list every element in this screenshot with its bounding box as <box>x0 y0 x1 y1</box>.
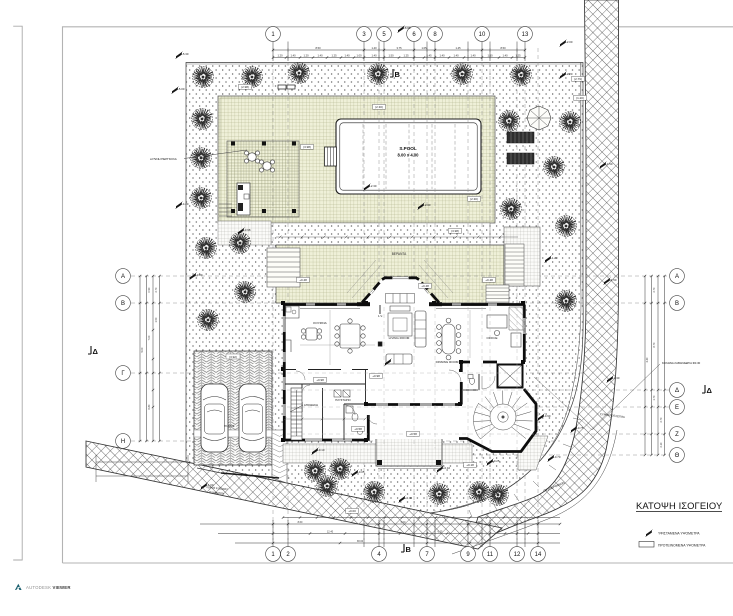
svg-text:ΓΚΑΡΑΖ: ΓΚΑΡΑΖ <box>224 424 235 428</box>
svg-text:8.50: 8.50 <box>500 46 506 50</box>
svg-text:(2.30): (2.30) <box>470 197 478 201</box>
svg-text:ΚΟΛΩΝΑ ΛΑΒΑΝΔΕΡΙΑ Φ0.30: ΚΟΛΩΝΑ ΛΑΒΑΝΔΕΡΙΑ Φ0.30 <box>662 361 701 365</box>
svg-text:1.40: 1.40 <box>453 53 459 57</box>
svg-text:2.10: 2.10 <box>660 442 663 447</box>
svg-text:(3.92): (3.92) <box>229 355 237 359</box>
svg-text:+0.48: +0.48 <box>421 284 429 288</box>
svg-text:(3.98): (3.98) <box>451 229 459 233</box>
svg-text:-2.30: -2.30 <box>370 184 377 188</box>
svg-text:2.20: 2.20 <box>476 521 481 524</box>
svg-text:1.25: 1.25 <box>515 53 521 57</box>
svg-text:A: A <box>121 274 125 280</box>
svg-text:1.40: 1.40 <box>344 53 350 57</box>
svg-text:8.50: 8.50 <box>315 46 321 50</box>
svg-text:7.00: 7.00 <box>148 335 151 340</box>
svg-text:1.45: 1.45 <box>455 46 461 50</box>
svg-text:DINNING ROOM: DINNING ROOM <box>436 360 459 364</box>
svg-text:+0.00: +0.00 <box>405 496 413 500</box>
svg-text:ΠΛΥΣΤΑΡΙΟ: ΠΛΥΣΤΑΡΙΟ <box>335 398 351 402</box>
svg-text:2.70: 2.70 <box>155 287 158 292</box>
svg-text:6.35: 6.35 <box>438 530 443 533</box>
svg-text:8.60: 8.60 <box>298 521 303 524</box>
svg-text:8.00 x 4.00: 8.00 x 4.00 <box>398 153 420 158</box>
svg-text:1.40: 1.40 <box>502 53 508 57</box>
svg-text:+0.48: +0.48 <box>299 278 307 282</box>
svg-text:4.40: 4.40 <box>646 357 649 362</box>
svg-text:+0.58: +0.58 <box>354 427 362 431</box>
svg-text:1.40: 1.40 <box>290 53 296 57</box>
svg-text:1.70: 1.70 <box>653 395 656 400</box>
svg-text:2.70: 2.70 <box>660 417 663 422</box>
svg-text:B: B <box>675 301 679 307</box>
svg-text:+0.10: +0.10 <box>443 466 451 470</box>
svg-text:1.V.: 1.V. <box>378 314 383 318</box>
svg-text:H: H <box>121 439 125 445</box>
svg-text:38.00: 38.00 <box>357 540 364 543</box>
svg-text:1.05: 1.05 <box>421 46 427 50</box>
svg-text:(2.30): (2.30) <box>375 105 383 109</box>
svg-text:(1.20): (1.20) <box>576 96 584 100</box>
svg-text:-5.00: -5.00 <box>178 87 185 91</box>
svg-text:ΒΕΡΑΝΤΑ: ΒΕΡΑΝΤΑ <box>392 252 407 256</box>
svg-text:ΥΦΙΣΤΑΜΕΝΑ ΥΨΟΜΕΤΡΑ: ΥΦΙΣΤΑΜΕΝΑ ΥΨΟΜΕΤΡΑ <box>658 532 700 536</box>
svg-text:1.00: 1.00 <box>356 53 362 57</box>
svg-text:-0.75: -0.75 <box>577 426 584 430</box>
svg-text:-0.90: -0.90 <box>544 414 551 418</box>
svg-text:ΞΥΛΙΝΗ ΠΕΡΓΚΟΛΑ: ΞΥΛΙΝΗ ΠΕΡΓΚΟΛΑ <box>150 157 177 161</box>
svg-text:1.40: 1.40 <box>470 53 476 57</box>
svg-text:OFFICE: OFFICE <box>487 336 498 340</box>
svg-text:1.50: 1.50 <box>388 53 394 57</box>
svg-text:(3.98): (3.98) <box>303 145 311 149</box>
svg-text:-5.30: -5.30 <box>182 52 189 56</box>
svg-text:-1.50: -1.50 <box>610 278 617 282</box>
svg-text:Δ: Δ <box>675 388 679 394</box>
svg-text:B: B <box>406 545 412 554</box>
svg-text:B: B <box>121 301 125 307</box>
svg-text:-0.25: -0.25 <box>493 459 500 463</box>
svg-text:A: A <box>675 274 679 280</box>
svg-text:(2.79): (2.79) <box>574 77 582 81</box>
svg-text:+0.48: +0.48 <box>485 278 493 282</box>
svg-text:VIEWER: VIEWER <box>53 585 72 590</box>
svg-text:-4.20: -4.20 <box>182 202 189 206</box>
svg-text:-1.00: -1.00 <box>207 483 214 487</box>
svg-text:8.70: 8.70 <box>653 342 656 347</box>
svg-text:+0.98: +0.98 <box>316 378 324 382</box>
svg-text:1.20: 1.20 <box>303 53 309 57</box>
svg-text:3.75: 3.75 <box>396 46 402 50</box>
svg-text:1.40: 1.40 <box>371 46 377 50</box>
svg-text:11: 11 <box>487 552 494 558</box>
svg-text:14: 14 <box>535 552 542 558</box>
svg-text:1.20: 1.20 <box>277 53 283 57</box>
svg-text:12: 12 <box>514 552 521 558</box>
svg-text:1.40: 1.40 <box>439 53 445 57</box>
svg-text:2.70: 2.70 <box>653 287 656 292</box>
svg-text:-0.05: -0.05 <box>358 470 365 474</box>
svg-text:+0.18: +0.18 <box>466 463 474 467</box>
svg-text:(2.98): (2.98) <box>241 85 249 89</box>
svg-text:Θ: Θ <box>675 453 680 459</box>
svg-text:S.POOL: S.POOL <box>399 146 417 151</box>
svg-text:5.00: 5.00 <box>401 521 406 524</box>
svg-text:+0.00: +0.00 <box>348 509 356 513</box>
svg-text:-2.20: -2.20 <box>566 72 573 76</box>
svg-text:+0.58: +0.58 <box>409 432 417 436</box>
svg-text:-2.30: -2.30 <box>424 203 431 207</box>
svg-text:-2.00: -2.00 <box>566 40 573 44</box>
svg-text:9.00: 9.00 <box>141 347 144 352</box>
svg-text:0.90: 0.90 <box>148 287 151 292</box>
svg-text:ΠΡΟΤΕΙΝΟΜΕΝΑ ΥΨΟΜΕΤΡΑ: ΠΡΟΤΕΙΝΟΜΕΝΑ ΥΨΟΜΕΤΡΑ <box>658 544 706 548</box>
svg-text:-6.00: -6.00 <box>404 26 411 30</box>
svg-text:Δ: Δ <box>707 386 713 395</box>
svg-text:13: 13 <box>522 32 529 38</box>
svg-text:E: E <box>675 405 679 411</box>
svg-text:1.50: 1.50 <box>155 317 158 322</box>
svg-text:1.25: 1.25 <box>403 53 409 57</box>
svg-text:-1.20: -1.20 <box>551 256 558 260</box>
svg-text:B: B <box>395 70 401 79</box>
svg-text:LIVING ROOM: LIVING ROOM <box>389 336 410 340</box>
svg-text:-0.70: -0.70 <box>554 455 561 459</box>
svg-text:Z: Z <box>675 432 679 438</box>
svg-text:1.25: 1.25 <box>331 53 337 57</box>
svg-text:ΚΑΤΟΨΗ ΙΣΟΓΕΙΟΥ: ΚΑΤΟΨΗ ΙΣΟΓΕΙΟΥ <box>636 500 723 511</box>
svg-text:ΑΠΟΘΗΚΗ: ΑΠΟΘΗΚΗ <box>304 403 318 407</box>
svg-text:1.50: 1.50 <box>487 53 493 57</box>
svg-text:Δ: Δ <box>93 347 99 356</box>
svg-text:10: 10 <box>479 32 486 38</box>
svg-text:-0.10: -0.10 <box>318 448 325 452</box>
svg-text:1.45: 1.45 <box>426 53 432 57</box>
svg-text:-3.80: -3.80 <box>196 273 203 277</box>
svg-text:-3.98: -3.98 <box>244 228 251 232</box>
svg-text:+0.98: +0.98 <box>372 374 380 378</box>
svg-text:1.40: 1.40 <box>317 53 323 57</box>
svg-text:6.80: 6.80 <box>148 404 151 409</box>
svg-text:ΚΟΥΖΙΝΑ: ΚΟΥΖΙΝΑ <box>313 321 327 325</box>
svg-text:-1.50: -1.50 <box>606 162 613 166</box>
svg-text:-1.30: -1.30 <box>613 376 620 380</box>
svg-text:AUTODESK: AUTODESK <box>26 585 51 590</box>
svg-text:1.40: 1.40 <box>371 53 377 57</box>
svg-text:12.40: 12.40 <box>327 530 334 533</box>
